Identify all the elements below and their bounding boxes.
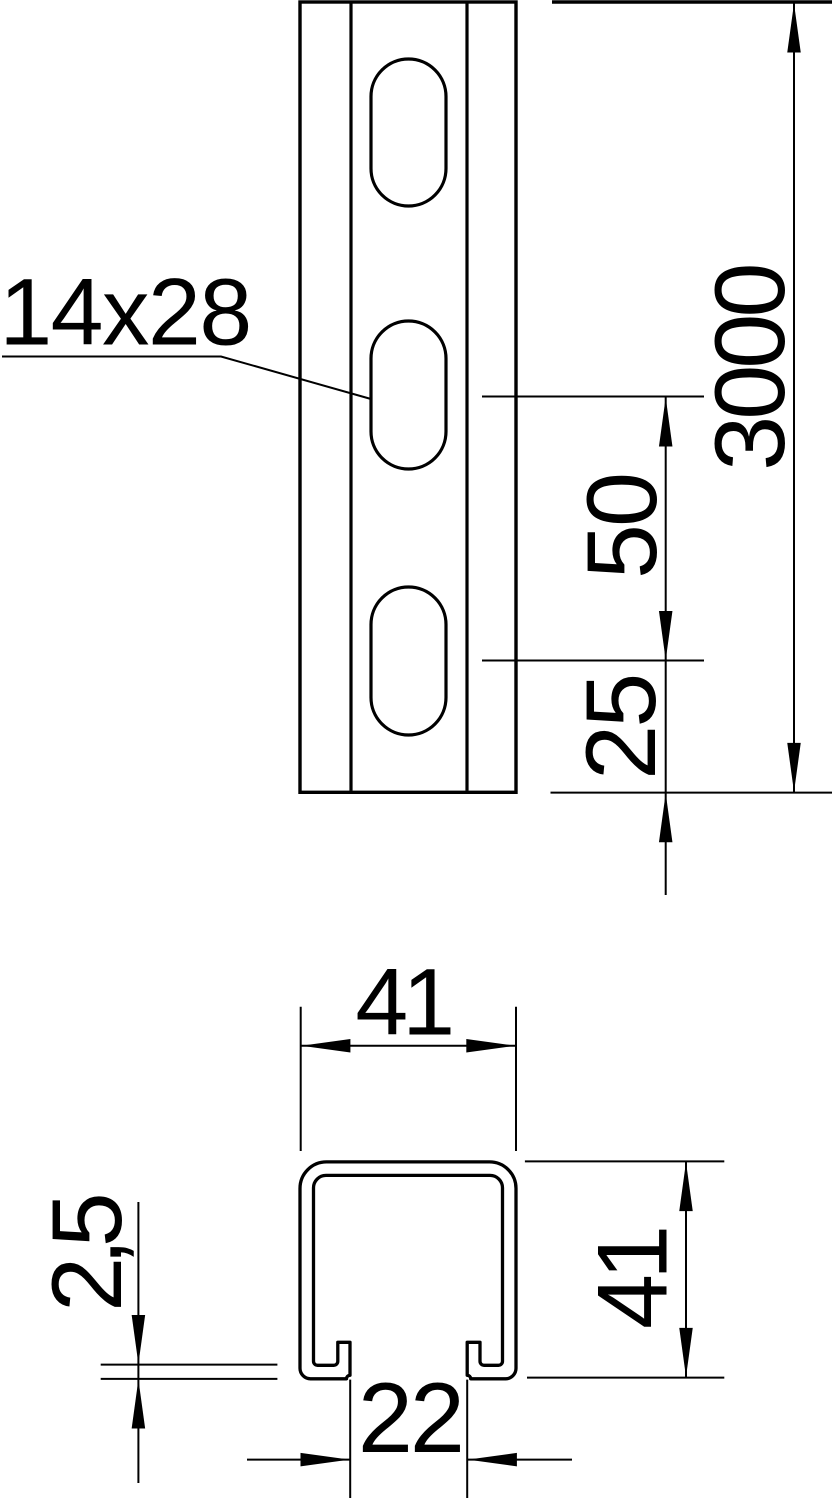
svg-text:41: 41 bbox=[355, 950, 451, 1056]
svg-text:2,5: 2,5 bbox=[31, 1196, 142, 1312]
svg-text:22: 22 bbox=[358, 1362, 462, 1473]
svg-text:25: 25 bbox=[565, 676, 676, 780]
svg-text:14x28: 14x28 bbox=[0, 260, 251, 366]
svg-text:50: 50 bbox=[566, 475, 677, 579]
svg-text:3000: 3000 bbox=[694, 266, 805, 471]
svg-text:41: 41 bbox=[577, 1229, 688, 1329]
